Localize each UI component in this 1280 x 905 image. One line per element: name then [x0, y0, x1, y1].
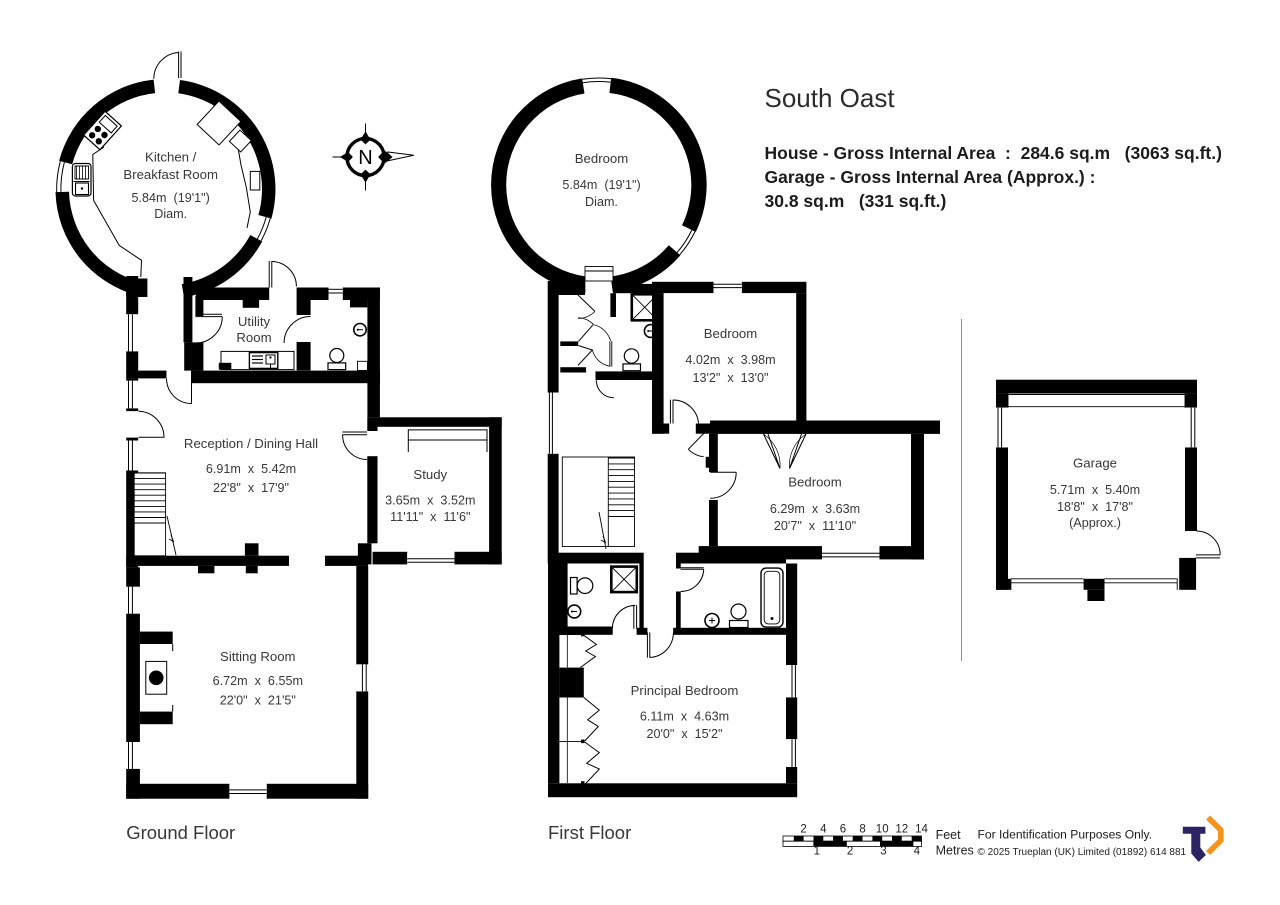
- svg-text:Garage - Gross Internal Area (: Garage - Gross Internal Area (Approx.) :: [765, 167, 1096, 187]
- svg-text:20'7" x 11'10": 20'7" x 11'10": [774, 519, 856, 533]
- svg-text:5.84m (19'1"): 5.84m (19'1"): [562, 178, 640, 192]
- svg-text:13'2" x 13'0": 13'2" x 13'0": [692, 371, 768, 385]
- svg-text:Ground Floor: Ground Floor: [126, 822, 235, 843]
- svg-text:8: 8: [859, 824, 865, 836]
- svg-text:5.71m x 5.40m: 5.71m x 5.40m: [1050, 483, 1140, 497]
- svg-text:3: 3: [880, 846, 886, 858]
- svg-text:11'11" x 11'6": 11'11" x 11'6": [390, 510, 470, 524]
- svg-text:Bedroom: Bedroom: [704, 326, 758, 341]
- svg-text:Reception / Dining Hall: Reception / Dining Hall: [184, 436, 318, 451]
- svg-text:6.29m x 3.63m: 6.29m x 3.63m: [770, 502, 860, 516]
- svg-text:Kitchen /: Kitchen /: [145, 150, 197, 165]
- svg-text:22'0" x 21'5": 22'0" x 21'5": [220, 694, 296, 708]
- svg-text:For Identification Purposes On: For Identification Purposes Only.: [978, 828, 1153, 842]
- svg-text:Utility: Utility: [238, 314, 271, 329]
- svg-text:14: 14: [915, 824, 928, 836]
- svg-text:12: 12: [895, 824, 908, 836]
- svg-text:Feet: Feet: [936, 828, 962, 842]
- svg-text:4: 4: [820, 824, 827, 836]
- svg-text:Bedroom: Bedroom: [788, 475, 842, 490]
- svg-text:Room: Room: [236, 330, 271, 345]
- svg-text:Principal Bedroom: Principal Bedroom: [631, 683, 739, 698]
- svg-text:Study: Study: [413, 467, 447, 482]
- svg-text:5.84m (19'1"): 5.84m (19'1"): [132, 191, 210, 205]
- svg-text:2: 2: [800, 824, 806, 836]
- svg-text:2: 2: [847, 846, 853, 858]
- svg-text:(Approx.): (Approx.): [1069, 516, 1121, 530]
- svg-text:Metres: Metres: [936, 844, 974, 858]
- svg-text:House - Gross Internal Area :: House - Gross Internal Area : 284.6 sq.m…: [765, 143, 1222, 163]
- svg-text:Bedroom: Bedroom: [575, 151, 629, 166]
- svg-text:6.72m x 6.55m: 6.72m x 6.55m: [213, 674, 303, 688]
- svg-text:6.91m x 5.42m: 6.91m x 5.42m: [206, 462, 296, 476]
- svg-text:22'8" x 17'9": 22'8" x 17'9": [213, 481, 289, 495]
- svg-text:10: 10: [876, 824, 889, 836]
- svg-text:6.11m x 4.63m: 6.11m x 4.63m: [640, 710, 729, 724]
- svg-text:4.02m x 3.98m: 4.02m x 3.98m: [685, 353, 775, 367]
- svg-text:18'8" x 17'8": 18'8" x 17'8": [1057, 500, 1133, 514]
- svg-text:1: 1: [814, 846, 820, 858]
- svg-text:4: 4: [914, 846, 921, 858]
- svg-text:© 2025 Trueplan (UK) Limited: © 2025 Trueplan (UK) Limited (01892) 614…: [978, 847, 1187, 858]
- svg-text:South Oast: South Oast: [765, 83, 896, 113]
- svg-text:Garage: Garage: [1073, 456, 1117, 471]
- svg-text:Diam.: Diam.: [585, 195, 618, 209]
- svg-text:Sitting Room: Sitting Room: [220, 649, 296, 664]
- svg-text:3.65m x 3.52m: 3.65m x 3.52m: [385, 494, 475, 508]
- svg-text:20'0" x 15'2": 20'0" x 15'2": [646, 727, 722, 741]
- svg-text:30.8 sq.m (331 sq.ft.): 30.8 sq.m (331 sq.ft.): [765, 191, 947, 211]
- svg-text:First Floor: First Floor: [548, 822, 631, 843]
- svg-text:6: 6: [840, 824, 846, 836]
- svg-text:Diam.: Diam.: [154, 207, 187, 221]
- svg-text:Breakfast Room: Breakfast Room: [123, 167, 218, 182]
- svg-text:N: N: [358, 147, 372, 169]
